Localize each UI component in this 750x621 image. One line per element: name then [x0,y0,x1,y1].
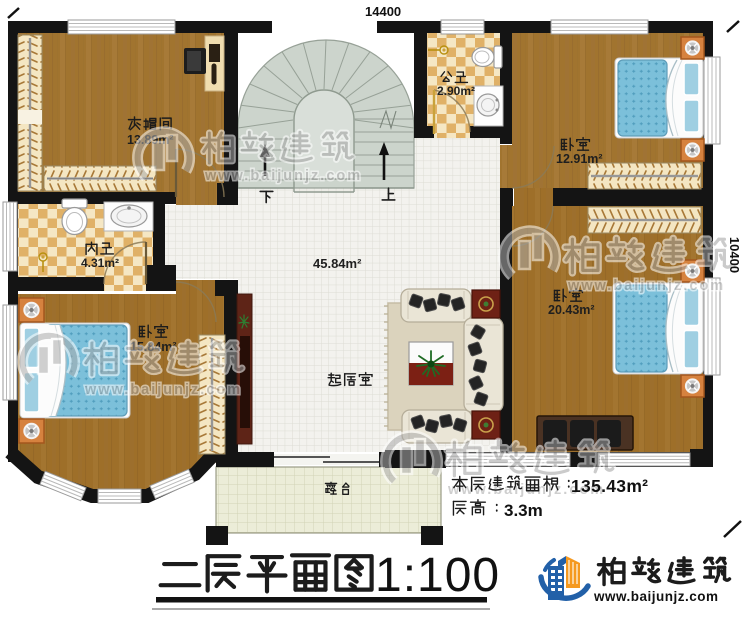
svg-text:2.90m²: 2.90m² [437,84,475,98]
svg-text:10400: 10400 [727,237,742,273]
svg-text:135.43m²: 135.43m² [571,476,648,496]
svg-text:45.84m²: 45.84m² [313,256,362,271]
svg-text:14400: 14400 [365,4,401,19]
svg-text:1:100: 1:100 [375,549,500,602]
svg-text:4.31m²: 4.31m² [81,256,119,270]
svg-text:3.3m: 3.3m [504,501,543,520]
svg-text:20.43m²: 20.43m² [548,303,595,317]
svg-text:www.baijunjz.com: www.baijunjz.com [593,589,719,604]
svg-text:www.baijunjz.com: www.baijunjz.com [567,278,725,294]
svg-text:12.91m²: 12.91m² [556,152,603,166]
svg-text:www.baijunjz.com: www.baijunjz.com [204,168,362,184]
svg-text:www.baijunjz.com: www.baijunjz.com [84,382,242,398]
